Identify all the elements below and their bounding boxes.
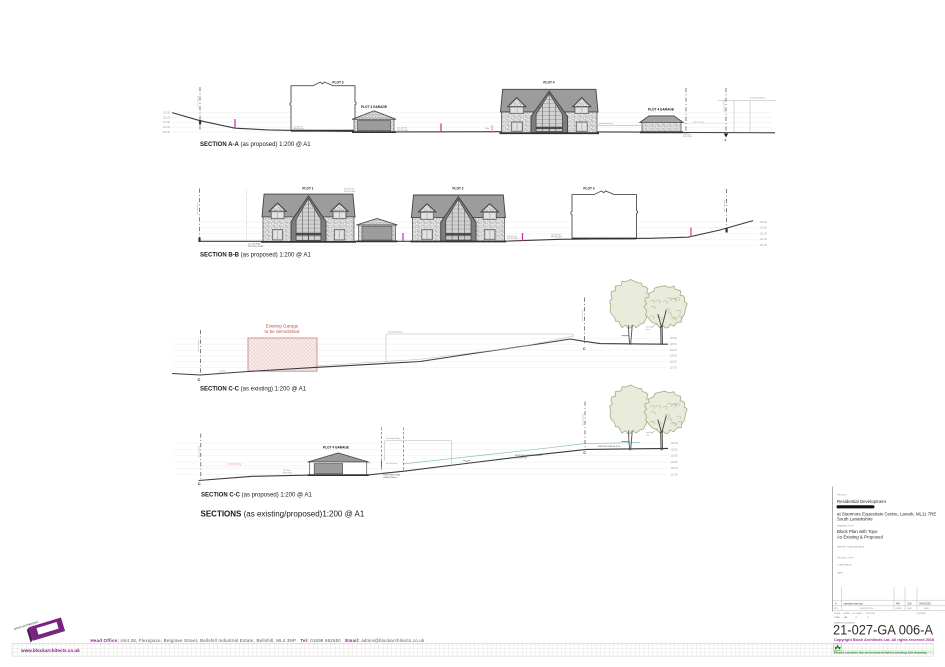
svg-text:EXISTING: EXISTING — [683, 136, 693, 138]
svg-text:PLOT 3 GARAGE: PLOT 3 GARAGE — [361, 105, 387, 109]
svg-text:1.8m: 1.8m — [485, 128, 489, 130]
svg-text:PROPOSED: PROPOSED — [551, 237, 563, 239]
svg-text:new driveway: new driveway — [386, 462, 398, 465]
svg-text:120.00: 120.00 — [670, 337, 678, 340]
svg-text:site boundary: site boundary — [197, 446, 200, 458]
svg-text:122.50: 122.50 — [760, 227, 768, 230]
svg-text:site boundary: site boundary — [196, 203, 199, 215]
svg-text:BIM REF: FLATDRAWINGS: BIM REF: FLATDRAWINGS — [837, 545, 865, 548]
svg-text:site boundary: site boundary — [581, 310, 584, 322]
svg-text:Please consider the environmen: Please consider the environment before p… — [834, 650, 927, 654]
svg-text:PROPOSED: PROPOSED — [397, 130, 409, 132]
svg-text:SECTION C-C (as existing) 1:2: SECTION C-C (as existing) 1:200 @ A1 — [200, 387, 307, 393]
svg-text:Residential Development: Residential Development — [837, 499, 887, 504]
svg-text:ALL SHEET: ALL SHEET — [853, 612, 864, 615]
svg-text:21-027-GA 006-A: 21-027-GA 006-A — [833, 623, 933, 638]
svg-text:garden fence line: garden fence line — [599, 123, 613, 125]
svg-text:COMM VALUE: COMM VALUE — [837, 564, 852, 567]
svg-text:PROJECT TYPE: PROJECT TYPE — [837, 557, 854, 559]
svg-text:PROPOSED: PROPOSED — [344, 191, 356, 193]
svg-text:C: C — [198, 481, 201, 486]
svg-text:PLOT 4 PLUS: PLOT 4 PLUS — [515, 458, 528, 460]
svg-text:122.00: 122.00 — [163, 116, 171, 119]
svg-text:existing driveway: existing driveway — [227, 463, 241, 466]
svg-text:117.50: 117.50 — [671, 474, 679, 477]
svg-text:118.50: 118.50 — [670, 355, 678, 358]
svg-text:PROPOSED: PROPOSED — [507, 238, 519, 240]
svg-text:PAPER: PAPER — [844, 612, 851, 615]
svg-text:site boundary: site boundary — [582, 414, 585, 426]
svg-text:SECTION B-B (as proposed) 1:2: SECTION B-B (as proposed) 1:200 @ A1 — [200, 253, 311, 259]
svg-text:SECTION C-C (as proposed) 1:2: SECTION C-C (as proposed) 1:200 @ A1 — [201, 493, 312, 499]
svg-text:05/09/2022: 05/09/2022 — [919, 602, 932, 605]
svg-text:119.00: 119.00 — [670, 349, 678, 352]
svg-text:SECTION A-A (as proposed) 1:2: SECTION A-A (as proposed) 1:200 @ A1 — [200, 142, 311, 148]
svg-text:119.50: 119.50 — [670, 343, 678, 346]
svg-text:123.00: 123.00 — [760, 221, 768, 224]
svg-text:0.9m: 0.9m — [367, 463, 371, 465]
svg-text:121.00: 121.00 — [163, 126, 171, 129]
svg-text:118.50: 118.50 — [671, 461, 679, 464]
svg-text:120.50: 120.50 — [163, 131, 171, 134]
svg-text:117.50: 117.50 — [670, 367, 678, 370]
svg-text:PURPOSE: PURPOSE — [866, 613, 876, 615]
svg-text:CHKD: CHKD — [907, 608, 913, 610]
svg-text:121.50: 121.50 — [760, 238, 768, 241]
svg-text:121.50: 121.50 — [163, 121, 171, 124]
svg-text:DESCRIPTION: DESCRIPTION — [860, 608, 874, 610]
svg-text:Copyright Block Architects Ltd: Copyright Block Architects Ltd. All righ… — [834, 638, 934, 642]
svg-text:A: A — [725, 138, 727, 142]
svg-text:Existing building: Existing building — [386, 437, 400, 440]
svg-text:RM: RM — [896, 602, 900, 605]
svg-text:PLOT 4 GARAGE: PLOT 4 GARAGE — [323, 446, 349, 450]
svg-text:120.00: 120.00 — [671, 442, 679, 445]
svg-text:PROPOSED: PROPOSED — [293, 129, 305, 131]
svg-text:119.50: 119.50 — [671, 448, 679, 451]
svg-text:DRWN: DRWN — [896, 608, 902, 610]
svg-text:Existing building: Existing building — [388, 331, 402, 334]
svg-text:DATE: DATE — [924, 607, 930, 610]
svg-text:site boundary: site boundary — [723, 200, 726, 212]
svg-text:standard planning: standard planning — [844, 602, 864, 605]
svg-text:EXISTING: EXISTING — [283, 473, 293, 475]
svg-text:DATE: DATE — [837, 572, 843, 575]
svg-text:track: track — [219, 372, 223, 375]
svg-text:As Existing & Proposed: As Existing & Proposed — [837, 534, 883, 539]
svg-text:site boundary: site boundary — [723, 100, 726, 112]
svg-text:121.00: 121.00 — [760, 244, 768, 247]
svg-text:CONTRACT: CONTRACT — [916, 612, 927, 615]
svg-text:122.50: 122.50 — [163, 112, 171, 115]
svg-text:DRAWING TITLE: DRAWING TITLE — [837, 524, 855, 527]
svg-text:122.00: 122.00 — [760, 232, 768, 235]
svg-text:PLOT 3: PLOT 3 — [332, 81, 343, 85]
svg-text:South Lanarkshire: South Lanarkshire — [837, 517, 873, 522]
svg-text:118.00: 118.00 — [670, 361, 678, 364]
svg-text:Block Plan with Topo: Block Plan with Topo — [837, 529, 878, 534]
svg-text:new driveway: new driveway — [693, 122, 704, 124]
svg-text:Existing building: Existing building — [750, 97, 764, 100]
svg-text:site boundary: site boundary — [197, 340, 200, 352]
svg-text:to be demolished: to be demolished — [265, 329, 300, 334]
svg-text:1:200: 1:200 — [834, 617, 840, 619]
svg-text:site boundary: site boundary — [197, 96, 200, 108]
svg-text:C: C — [198, 377, 201, 382]
svg-text:PLOT 4 GARAGE: PLOT 4 GARAGE — [648, 108, 674, 112]
svg-text:PLOT 2: PLOT 2 — [452, 187, 463, 191]
svg-text:119.00: 119.00 — [671, 455, 679, 458]
svg-text:Head Office: Unit 28, Flexspac: Head Office: Unit 28, Flexspace, Belgrav… — [91, 638, 425, 643]
svg-text:PLOT 1: PLOT 1 — [302, 187, 313, 191]
svg-text:PROJECT: PROJECT — [837, 495, 848, 497]
svg-text:SECTIONS (as existing/proposed: SECTIONS (as existing/proposed)1:200 @ A… — [201, 510, 365, 519]
svg-text:Existing Garage: Existing Garage — [266, 324, 299, 329]
svg-text:www.blockarchitects.co.uk: www.blockarchitects.co.uk — [20, 648, 80, 653]
svg-text:RAISED 300mm: RAISED 300mm — [383, 476, 397, 479]
svg-text:118.00: 118.00 — [671, 467, 679, 470]
svg-text:PLOT 3: PLOT 3 — [583, 187, 594, 191]
svg-text:EXISTING ROAD AT SITE: EXISTING ROAD AT SITE — [598, 445, 621, 448]
svg-text:EXISTING ROAD: EXISTING ROAD — [248, 245, 264, 248]
svg-text:SCALE: SCALE — [834, 612, 841, 615]
svg-text:PLOT 4: PLOT 4 — [543, 81, 554, 85]
